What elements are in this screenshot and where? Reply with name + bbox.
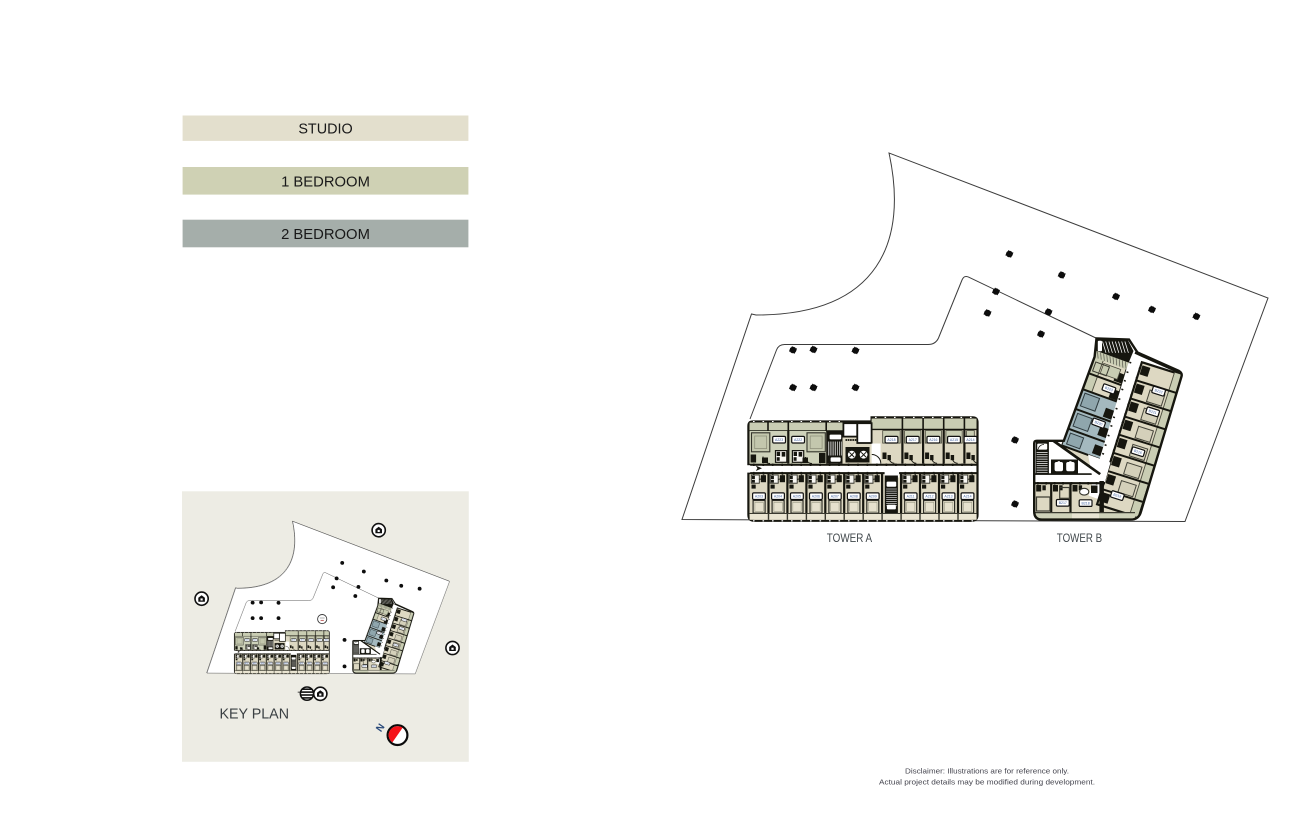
svg-text:TOWER A: TOWER A — [827, 531, 872, 545]
svg-text:STUDIO: STUDIO — [298, 122, 352, 138]
svg-text:1 BEDROOM: 1 BEDROOM — [281, 174, 370, 190]
svg-text:2 BEDROOM: 2 BEDROOM — [281, 227, 370, 243]
svg-text:Actual project details may be: Actual project details may be modified d… — [879, 778, 1095, 787]
svg-text:TOWER B: TOWER B — [1057, 531, 1102, 545]
svg-text:Disclaimer: Illustrations are: Disclaimer: Illustrations are for refere… — [905, 767, 1069, 776]
svg-text:KEY PLAN: KEY PLAN — [220, 706, 290, 723]
